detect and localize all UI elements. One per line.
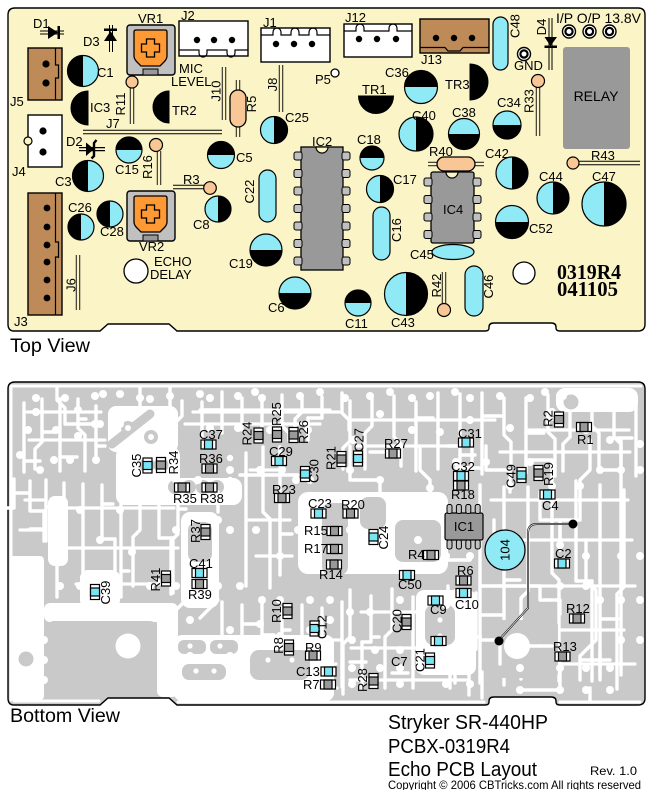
svg-text:IC1: IC1 — [454, 519, 474, 534]
svg-text:041105: 041105 — [557, 277, 618, 301]
svg-text:C9: C9 — [430, 602, 447, 617]
svg-text:104: 104 — [498, 539, 513, 561]
svg-text:R18: R18 — [451, 487, 475, 502]
svg-text:C25: C25 — [285, 110, 309, 125]
svg-text:VR2: VR2 — [139, 239, 164, 254]
svg-text:C37: C37 — [199, 427, 223, 442]
svg-text:R28: R28 — [355, 668, 370, 692]
svg-text:D1: D1 — [33, 16, 50, 31]
svg-text:C34: C34 — [497, 95, 521, 110]
svg-text:I/P O/P 13.8V: I/P O/P 13.8V — [556, 10, 642, 26]
svg-text:C45: C45 — [410, 247, 434, 262]
svg-text:C46: C46 — [481, 275, 496, 299]
svg-text:C47: C47 — [592, 169, 616, 184]
svg-text:R3: R3 — [183, 172, 200, 187]
svg-text:C31: C31 — [458, 426, 482, 441]
svg-text:C12: C12 — [315, 615, 330, 639]
svg-text:Rev. 1.0: Rev. 1.0 — [590, 764, 637, 778]
svg-text:J8: J8 — [265, 78, 280, 92]
svg-text:R8: R8 — [271, 637, 286, 654]
svg-text:R14: R14 — [319, 567, 343, 582]
svg-text:TR3: TR3 — [445, 77, 470, 92]
svg-text:R12: R12 — [566, 601, 590, 616]
svg-text:DELAY: DELAY — [150, 267, 192, 282]
svg-text:C19: C19 — [229, 256, 253, 271]
svg-text:R10: R10 — [269, 599, 284, 623]
svg-text:C29: C29 — [269, 444, 293, 459]
svg-text:C21: C21 — [413, 648, 428, 672]
svg-text:J3: J3 — [14, 314, 28, 329]
svg-text:C3: C3 — [55, 174, 72, 189]
svg-text:C11: C11 — [345, 316, 368, 331]
svg-text:R43: R43 — [591, 148, 615, 163]
svg-text:J12: J12 — [345, 10, 366, 25]
svg-text:R35: R35 — [173, 491, 197, 506]
svg-text:R41: R41 — [148, 568, 163, 592]
svg-text:PCBX-0319R4: PCBX-0319R4 — [388, 736, 510, 758]
svg-text:R6: R6 — [457, 563, 474, 578]
svg-text:C18: C18 — [357, 132, 381, 147]
svg-text:R25: R25 — [269, 402, 284, 426]
svg-text:C41: C41 — [189, 556, 213, 571]
svg-text:C35: C35 — [129, 454, 144, 478]
svg-text:D3: D3 — [83, 34, 100, 49]
svg-text:VR1: VR1 — [138, 11, 163, 26]
svg-text:R20: R20 — [341, 497, 365, 512]
svg-text:C23: C23 — [308, 496, 332, 511]
svg-text:R5: R5 — [244, 96, 259, 113]
svg-text:R26: R26 — [296, 420, 311, 444]
svg-text:R15: R15 — [304, 523, 328, 538]
svg-text:R37: R37 — [188, 519, 203, 543]
svg-text:R34: R34 — [166, 451, 181, 475]
svg-text:Top View: Top View — [10, 336, 90, 357]
svg-text:C42: C42 — [485, 146, 509, 161]
svg-text:C52: C52 — [529, 221, 553, 236]
svg-text:C36: C36 — [385, 65, 409, 80]
svg-text:C26: C26 — [68, 200, 92, 215]
svg-text:C38: C38 — [452, 105, 476, 120]
svg-text:IC4: IC4 — [443, 202, 463, 217]
svg-text:R33: R33 — [522, 89, 537, 113]
svg-text:C7: C7 — [391, 654, 408, 669]
svg-text:R19: R19 — [541, 462, 556, 486]
svg-text:R40: R40 — [429, 144, 453, 159]
svg-text:IC3: IC3 — [90, 100, 110, 115]
svg-text:C1: C1 — [97, 65, 114, 80]
svg-text:R13: R13 — [553, 639, 577, 654]
svg-text:C22: C22 — [242, 180, 257, 204]
svg-text:R1: R1 — [577, 432, 594, 447]
svg-text:J4: J4 — [12, 164, 26, 179]
svg-text:C16: C16 — [389, 218, 404, 242]
svg-text:R38: R38 — [200, 491, 224, 506]
svg-text:C49: C49 — [504, 464, 519, 488]
svg-text:TR2: TR2 — [172, 103, 197, 118]
svg-text:LEVEL: LEVEL — [171, 74, 211, 89]
svg-text:C2: C2 — [555, 546, 572, 561]
svg-text:C44: C44 — [539, 169, 563, 184]
svg-text:C4: C4 — [542, 498, 559, 513]
svg-text:D4: D4 — [534, 19, 549, 36]
svg-text:R2: R2 — [541, 410, 556, 427]
svg-text:C43: C43 — [391, 315, 415, 330]
svg-text:C30: C30 — [307, 459, 322, 483]
svg-text:C24: C24 — [376, 526, 391, 550]
svg-text:C28: C28 — [100, 224, 124, 239]
svg-text:C50: C50 — [398, 577, 422, 592]
svg-text:C6: C6 — [268, 300, 285, 315]
svg-text:C10: C10 — [455, 597, 479, 612]
svg-text:J10: J10 — [209, 81, 224, 102]
svg-text:C27: C27 — [352, 428, 367, 452]
svg-text:R23: R23 — [272, 482, 296, 497]
svg-text:J2: J2 — [181, 8, 195, 23]
svg-text:R11: R11 — [113, 93, 128, 116]
svg-text:J13: J13 — [421, 52, 442, 67]
svg-text:J6: J6 — [64, 278, 79, 292]
svg-text:R21: R21 — [324, 446, 339, 470]
svg-text:R9: R9 — [305, 640, 322, 655]
svg-text:P5: P5 — [315, 72, 331, 87]
svg-text:R17: R17 — [304, 541, 328, 556]
svg-text:Bottom View: Bottom View — [10, 706, 120, 727]
svg-text:C15: C15 — [115, 162, 139, 177]
svg-text:J1: J1 — [263, 15, 277, 30]
svg-text:J7: J7 — [106, 116, 120, 131]
svg-text:C40: C40 — [412, 108, 436, 123]
svg-text:R24: R24 — [240, 422, 255, 446]
svg-text:R27: R27 — [384, 436, 408, 451]
svg-text:C20: C20 — [390, 609, 405, 633]
svg-text:R7: R7 — [303, 677, 320, 692]
svg-text:C48: C48 — [508, 14, 523, 38]
svg-text:Copyright © 2006 CBTricks.com: Copyright © 2006 CBTricks.com All rights… — [388, 778, 641, 790]
svg-text:GND: GND — [514, 58, 543, 73]
svg-text:C39: C39 — [98, 581, 113, 605]
svg-text:D2: D2 — [66, 134, 83, 149]
svg-text:J5: J5 — [10, 94, 24, 109]
svg-text:Stryker SR-440HP: Stryker SR-440HP — [388, 712, 548, 734]
svg-text:R36: R36 — [199, 451, 223, 466]
svg-text:C5: C5 — [236, 150, 253, 165]
svg-text:C32: C32 — [451, 459, 475, 474]
svg-text:R42: R42 — [429, 274, 444, 298]
svg-text:RELAY: RELAY — [574, 88, 620, 104]
svg-text:C17: C17 — [393, 172, 417, 187]
svg-text:C8: C8 — [193, 217, 210, 232]
svg-text:IC2: IC2 — [312, 134, 332, 149]
svg-text:R39: R39 — [188, 587, 212, 602]
svg-text:TR1: TR1 — [362, 82, 387, 97]
svg-text:R4: R4 — [408, 547, 425, 562]
svg-text:R16: R16 — [140, 155, 155, 179]
